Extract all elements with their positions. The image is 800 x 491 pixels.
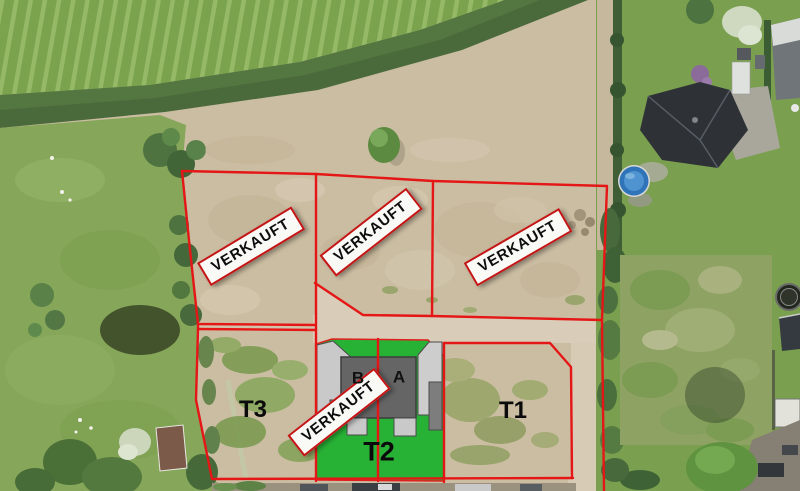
plot-label-t1: T1 [499,399,527,423]
unit-label-a: A [393,369,405,386]
shed-roof [156,425,187,471]
annex-right [429,382,442,430]
terrace-right [394,418,416,436]
aerial-site-plan: VERKAUFT VERKAUFT VERKAUFT VERKAUFT T3 T… [0,0,800,491]
plot-label-t2: T2 [363,439,395,466]
plot-label-t3: T3 [239,398,267,422]
right-gardens [596,0,800,491]
unit-label-b: B [352,370,364,387]
terrace-left [347,418,367,435]
aerial-photo [0,0,800,491]
